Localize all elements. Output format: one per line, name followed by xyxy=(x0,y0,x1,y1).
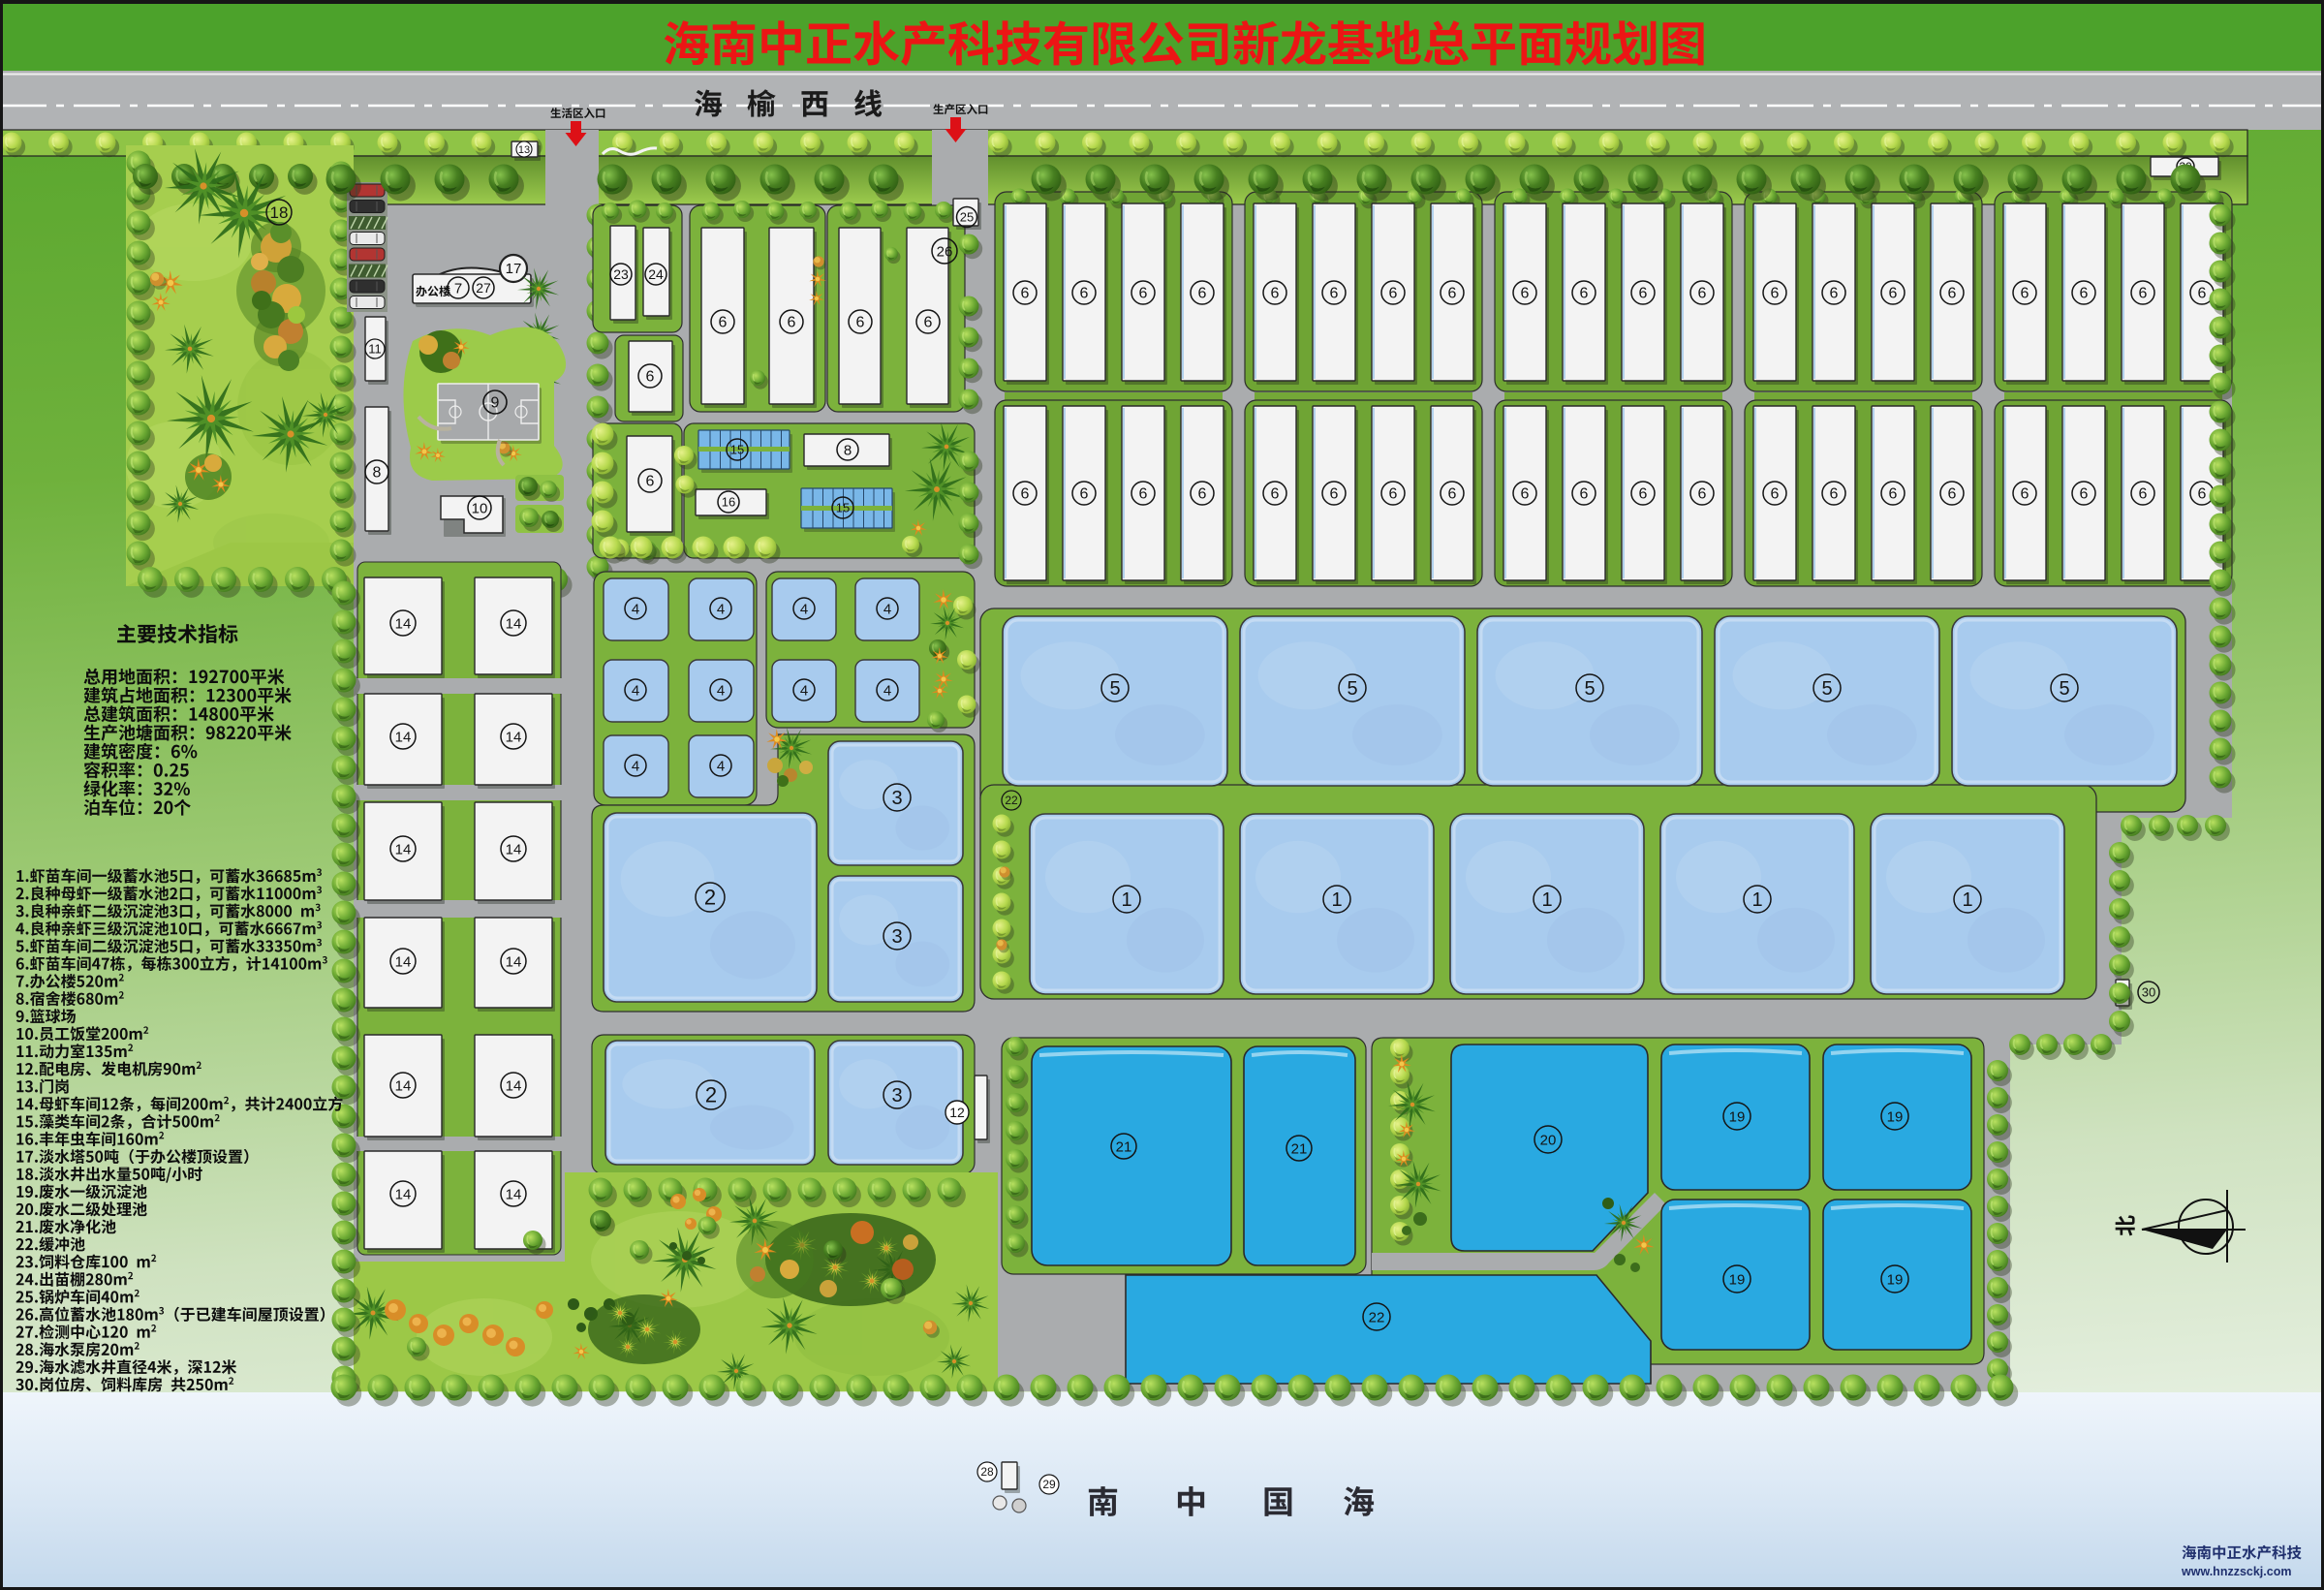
svg-text:14: 14 xyxy=(506,841,522,857)
svg-text:6: 6 xyxy=(2021,486,2030,503)
svg-text:14: 14 xyxy=(395,841,412,857)
svg-text:6: 6 xyxy=(2198,286,2207,302)
svg-text:6: 6 xyxy=(1948,286,1957,302)
svg-text:6: 6 xyxy=(1639,286,1648,302)
svg-text:15: 15 xyxy=(836,501,850,515)
svg-text:14: 14 xyxy=(395,953,412,970)
svg-text:2: 2 xyxy=(704,886,716,910)
svg-text:www.hnzzsckj.com: www.hnzzsckj.com xyxy=(2181,1565,2291,1578)
svg-text:1: 1 xyxy=(1751,889,1762,911)
svg-text:6: 6 xyxy=(1830,286,1839,302)
svg-text:9: 9 xyxy=(491,395,500,412)
svg-text:5: 5 xyxy=(1584,678,1595,700)
svg-text:25: 25 xyxy=(960,210,974,225)
svg-text:3: 3 xyxy=(891,926,902,948)
svg-text:6: 6 xyxy=(1521,486,1530,503)
svg-text:16: 16 xyxy=(722,495,735,510)
svg-text:6: 6 xyxy=(1771,486,1780,503)
svg-text:6: 6 xyxy=(1271,486,1280,503)
svg-text:7: 7 xyxy=(454,280,462,296)
svg-text:3: 3 xyxy=(891,788,902,809)
svg-text:6: 6 xyxy=(1330,486,1339,503)
svg-text:6: 6 xyxy=(788,315,796,331)
svg-text:6: 6 xyxy=(1580,486,1589,503)
svg-text:6: 6 xyxy=(1771,286,1780,302)
svg-text:6: 6 xyxy=(1698,486,1707,503)
svg-text:6: 6 xyxy=(1330,286,1339,302)
svg-text:19: 19 xyxy=(1887,1271,1904,1288)
svg-text:4: 4 xyxy=(632,758,639,774)
svg-text:14: 14 xyxy=(506,615,522,632)
svg-text:6: 6 xyxy=(1580,286,1589,302)
svg-text:6: 6 xyxy=(1521,286,1530,302)
svg-text:6: 6 xyxy=(1698,286,1707,302)
svg-text:6: 6 xyxy=(1198,286,1207,302)
svg-text:14: 14 xyxy=(506,1186,522,1202)
svg-text:4: 4 xyxy=(883,601,891,617)
svg-text:14: 14 xyxy=(395,615,412,632)
svg-text:4: 4 xyxy=(717,601,725,617)
svg-text:22: 22 xyxy=(1369,1309,1385,1325)
svg-text:6: 6 xyxy=(719,315,728,331)
svg-text:23: 23 xyxy=(613,266,629,282)
svg-text:6: 6 xyxy=(1830,486,1839,503)
svg-text:6: 6 xyxy=(1198,486,1207,503)
svg-text:17: 17 xyxy=(506,261,522,277)
svg-text:6: 6 xyxy=(1448,486,1457,503)
svg-text:6: 6 xyxy=(1080,486,1089,503)
svg-text:11: 11 xyxy=(368,342,382,357)
svg-text:14: 14 xyxy=(506,729,522,745)
svg-text:6: 6 xyxy=(1139,286,1148,302)
svg-text:6: 6 xyxy=(2021,286,2030,302)
svg-text:1: 1 xyxy=(1331,889,1342,911)
svg-text:4: 4 xyxy=(883,682,891,699)
svg-text:14: 14 xyxy=(395,729,412,745)
svg-text:10: 10 xyxy=(472,500,488,516)
svg-text:1: 1 xyxy=(1962,889,1972,911)
svg-text:6: 6 xyxy=(1080,286,1089,302)
svg-text:2: 2 xyxy=(705,1083,717,1107)
svg-text:6: 6 xyxy=(1889,286,1898,302)
svg-text:6: 6 xyxy=(2139,486,2148,503)
svg-text:6: 6 xyxy=(1139,486,1148,503)
svg-text:6: 6 xyxy=(646,369,655,386)
svg-text:8: 8 xyxy=(373,465,382,482)
svg-text:6: 6 xyxy=(1448,286,1457,302)
svg-text:6: 6 xyxy=(646,474,655,490)
svg-text:26: 26 xyxy=(937,243,953,260)
svg-text:6: 6 xyxy=(2198,486,2207,503)
svg-text:6: 6 xyxy=(2080,286,2089,302)
svg-text:21: 21 xyxy=(1291,1140,1308,1157)
svg-text:5: 5 xyxy=(2059,678,2069,700)
svg-text:5: 5 xyxy=(1109,678,1120,700)
svg-text:15: 15 xyxy=(730,443,744,457)
svg-text:27: 27 xyxy=(476,280,491,296)
svg-text:18: 18 xyxy=(270,203,289,222)
svg-text:6: 6 xyxy=(1271,286,1280,302)
svg-text:14: 14 xyxy=(395,1186,412,1202)
svg-text:13: 13 xyxy=(518,144,530,156)
svg-text:5: 5 xyxy=(1347,678,1357,700)
svg-text:4: 4 xyxy=(717,682,725,699)
svg-text:1: 1 xyxy=(1541,889,1552,911)
svg-text:29: 29 xyxy=(1042,1478,1056,1491)
svg-text:19: 19 xyxy=(1729,1108,1746,1125)
svg-text:4: 4 xyxy=(632,682,639,699)
svg-text:24: 24 xyxy=(648,266,664,282)
svg-text:19: 19 xyxy=(1887,1108,1904,1125)
svg-text:4: 4 xyxy=(632,601,639,617)
svg-text:6: 6 xyxy=(1639,486,1648,503)
svg-text:8: 8 xyxy=(844,442,852,458)
svg-text:1: 1 xyxy=(1121,889,1131,911)
svg-text:14: 14 xyxy=(506,953,522,970)
svg-text:6: 6 xyxy=(1021,486,1030,503)
svg-text:19: 19 xyxy=(1729,1271,1746,1288)
svg-text:20: 20 xyxy=(1540,1132,1557,1148)
svg-text:22: 22 xyxy=(1005,794,1018,807)
svg-text:6: 6 xyxy=(1389,286,1398,302)
svg-text:4: 4 xyxy=(800,601,808,617)
svg-text:14: 14 xyxy=(506,1077,522,1094)
svg-text:30: 30 xyxy=(2142,985,2155,1000)
svg-text:6: 6 xyxy=(856,315,865,331)
svg-text:6: 6 xyxy=(2080,486,2089,503)
svg-text:21: 21 xyxy=(1116,1138,1132,1155)
svg-text:6: 6 xyxy=(1889,486,1898,503)
svg-text:12: 12 xyxy=(949,1105,965,1120)
svg-text:4: 4 xyxy=(800,682,808,699)
svg-text:6: 6 xyxy=(1389,486,1398,503)
svg-text:3: 3 xyxy=(891,1085,902,1107)
svg-text:6: 6 xyxy=(1021,286,1030,302)
svg-text:5: 5 xyxy=(1821,678,1832,700)
svg-text:6: 6 xyxy=(1948,486,1957,503)
svg-text:6: 6 xyxy=(2139,286,2148,302)
svg-text:6: 6 xyxy=(924,315,933,331)
svg-text:4: 4 xyxy=(717,758,725,774)
svg-text:14: 14 xyxy=(395,1077,412,1094)
svg-text:28: 28 xyxy=(980,1465,994,1479)
